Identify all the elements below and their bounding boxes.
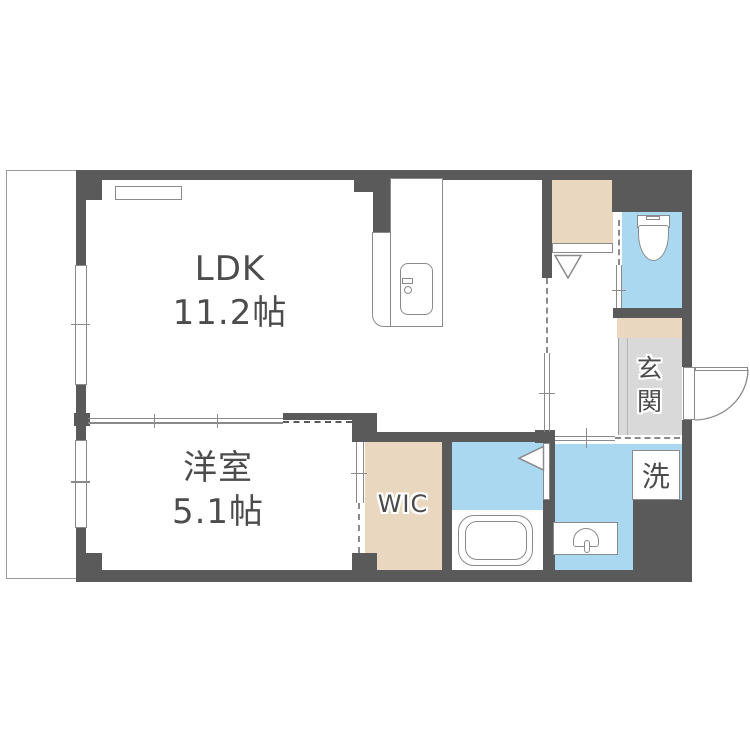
toilet-lid-icon — [646, 216, 660, 221]
wall-kitchen-pillar — [373, 170, 390, 232]
toilet-door-rail-right — [621, 265, 622, 308]
wall-corner-mid — [352, 413, 377, 442]
sliding-door-line-top — [88, 418, 283, 419]
toilet-door-dashed — [618, 220, 620, 265]
bedroom-name: 洋室 — [118, 446, 318, 490]
balcony-top-line — [6, 170, 77, 171]
bedroom-label: 洋室 5.1帖 — [118, 446, 318, 534]
sliding-door-tick-2 — [217, 414, 218, 428]
wall-ps-block — [612, 179, 692, 212]
washroom-door-tick — [586, 428, 587, 448]
laundry-label: 洗 — [642, 455, 670, 495]
wall-wic-bath — [442, 442, 452, 570]
wall-hall-partition — [542, 170, 552, 278]
ldk-label: LDK 11.2帖 — [130, 247, 330, 335]
closet-area — [552, 179, 614, 243]
bathtub-inner-icon — [465, 521, 527, 561]
hall-door-dashed — [546, 278, 548, 353]
sliding-door-line-bottom — [88, 422, 283, 423]
washroom-door-line-top — [555, 436, 615, 437]
wic-label: WIC — [363, 490, 443, 518]
wall-block-bottom-right — [633, 500, 692, 582]
sliding-door-tick-1 — [154, 414, 155, 428]
wall-partition-hanging — [283, 413, 352, 420]
window-bedroom — [75, 440, 87, 528]
wall-hall-bottom-block — [535, 430, 555, 443]
entry-door-swing-arc — [694, 369, 750, 423]
wic-door-dashed — [358, 503, 360, 553]
kitchen-counter-side — [372, 232, 392, 327]
floor-plan: 洗 LDK 11.2帖 洋室 5.1帖 WIC 玄関 — [0, 0, 750, 750]
shelf — [115, 186, 182, 200]
faucet-icon — [402, 278, 413, 284]
closet-triangle-icon — [552, 254, 585, 280]
wic-door-tick — [351, 473, 367, 474]
wall-toilet-bottom — [613, 308, 692, 318]
wall-partition-nub-left — [74, 413, 90, 426]
toilet-door-rail-left — [616, 265, 617, 308]
balcony-left-line — [6, 170, 7, 579]
closet-door-band — [552, 243, 614, 253]
ldk-name: LDK — [130, 247, 330, 291]
wall-wic-notch — [352, 553, 377, 570]
entrance-cabinet — [617, 318, 683, 338]
washroom-door-line-bottom — [555, 440, 615, 441]
wall-left-upper — [76, 180, 86, 265]
wall-wic-top — [377, 432, 555, 442]
entrance-label: 玄関 — [636, 352, 663, 418]
wall-bath-wash — [550, 443, 555, 500]
washroom-door-dashed — [615, 437, 680, 439]
ldk-size: 11.2帖 — [130, 291, 330, 335]
faucet-knob-icon — [404, 286, 412, 294]
entrance-step-line — [627, 338, 628, 435]
laundry-box: 洗 — [632, 450, 680, 500]
hall-door-tick — [539, 393, 555, 394]
window-ldk-tick — [71, 324, 90, 325]
balcony-bottom-line — [6, 578, 77, 579]
partition-dashed-opening — [283, 421, 352, 423]
washbasin-drain-icon — [584, 540, 590, 553]
bathroom-door-triangle-icon — [516, 444, 546, 473]
window-bedroom-tick — [71, 481, 90, 482]
toilet-door-tick — [612, 290, 626, 291]
wall-bottom — [76, 570, 692, 582]
bedroom-size: 5.1帖 — [118, 490, 318, 534]
